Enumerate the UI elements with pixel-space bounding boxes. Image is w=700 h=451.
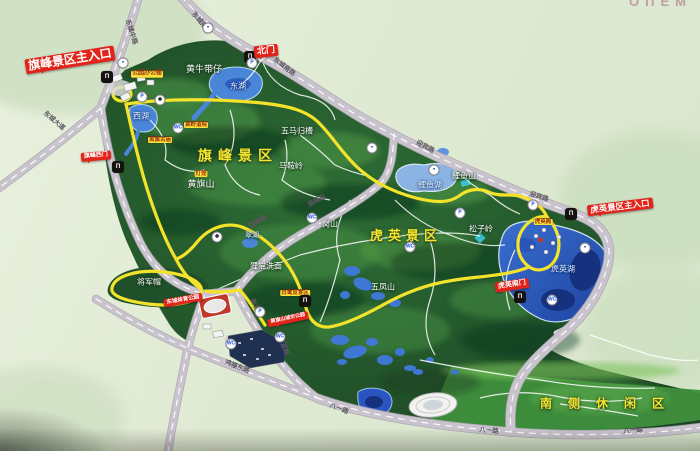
road-label-2: 东城南路 [272, 56, 297, 78]
terrain-label-8: 狸猫洗面 [250, 263, 282, 272]
terrain-label-4: 岗山 [322, 221, 338, 230]
banner-dongcheng-sports-park: 东城体育公园 [163, 293, 203, 308]
terrain-label-9: 将军帽 [137, 279, 161, 288]
area-title-qifeng: 旗峰景区 [198, 148, 278, 163]
bus-icon: ▪ [429, 165, 440, 176]
toilet-icon: WC [173, 123, 184, 134]
bus-icon: ▪ [118, 58, 129, 69]
parking-icon: P [255, 307, 266, 318]
banner-huangqishan-city-park: 黄旗山城市公园 [267, 311, 309, 327]
gate-icon: Π [299, 295, 311, 307]
spot-label-5: 虎英阁 [534, 219, 553, 225]
gate-icon: Π [112, 161, 124, 173]
toilet-icon: WC [307, 213, 318, 224]
cable-car-icon: ◆ [212, 232, 223, 243]
terrain-label-7: 五凤山 [371, 284, 395, 293]
bus-icon: ▪ [203, 23, 214, 34]
terrain-label-5: 鲤鱼山 [452, 173, 476, 182]
road-label-10: 鸿福东路 [224, 359, 251, 375]
water-label-3: 虎英湖 [551, 266, 575, 275]
spot-label-1: 黄岭道院 [184, 122, 208, 128]
spot-label-2: 黄旗古庙 [148, 137, 172, 143]
banner-qifeng-west-gate: 旗峰西门 [81, 150, 112, 161]
cable-car-icon: ◆ [155, 95, 166, 106]
banner-huying-south-gate: 虎英南门 [494, 278, 529, 292]
terrain-label-6: 松子岭 [469, 226, 493, 235]
water-label-0: 东湖 [230, 83, 246, 92]
spot-label-3: 灯笼 [194, 171, 207, 177]
toilet-icon: WC [275, 332, 286, 343]
water-label-4: 翠湖 [245, 232, 259, 240]
terrain-label-0: 黄牛带仔 [186, 65, 222, 75]
corner-watermark-text: OПEM [629, 0, 692, 9]
gate-icon: Π [514, 291, 526, 303]
parking-icon: P [528, 200, 539, 211]
area-title-huying: 虎英景区 [370, 229, 442, 243]
road-label-6: 旗峰路 [248, 214, 268, 230]
spot-label-0: 公园办公楼 [131, 71, 163, 78]
bus-icon: ▪ [367, 143, 378, 154]
water-label-2: 鲤鱼湖 [418, 182, 442, 191]
road-label-11: 八一路 [329, 402, 350, 416]
area-title-south-leisure: 南侧休闲区 [540, 397, 680, 410]
road-label-12: 八一路 [479, 427, 499, 436]
gate-icon: Π [101, 71, 113, 83]
map-labels: 旗峰景区主入口北门旗峰西门虎英景区主入口虎英南门东城体育公园黄旗山城市公园旗峰景… [0, 0, 700, 451]
road-label-3: 东城大道 [42, 110, 67, 132]
road-label-7: 旗峰路 [307, 193, 328, 208]
road-label-13: 八一路 [623, 427, 643, 435]
terrain-label-3: 黄旗山 [187, 180, 214, 190]
toilet-icon: WC [226, 339, 237, 350]
terrain-label-2: 马鞍岭 [279, 163, 303, 172]
gate-icon: Π [565, 208, 577, 220]
road-label-0: 东城中路 [124, 19, 139, 46]
banner-qifeng-main-entrance: 旗峰景区主入口 [24, 45, 115, 74]
water-label-1: 西湖 [133, 113, 149, 122]
bus-icon: ▪ [580, 243, 591, 254]
road-label-4: 迎宾路 [415, 139, 436, 154]
parking-icon: P [137, 92, 148, 103]
banner-huying-main-entrance: 虎英景区主入口 [587, 197, 653, 216]
terrain-label-1: 五马归槽 [281, 128, 313, 137]
parking-icon: P [455, 208, 466, 219]
park-map-signboard-photo: 旗峰景区主入口北门旗峰西门虎英景区主入口虎英南门东城体育公园黄旗山城市公园旗峰景… [0, 0, 700, 451]
banner-north-gate: 北门 [253, 44, 278, 58]
toilet-icon: WC [547, 295, 558, 306]
toilet-icon: WC [405, 242, 416, 253]
parking-icon: P [247, 58, 258, 69]
